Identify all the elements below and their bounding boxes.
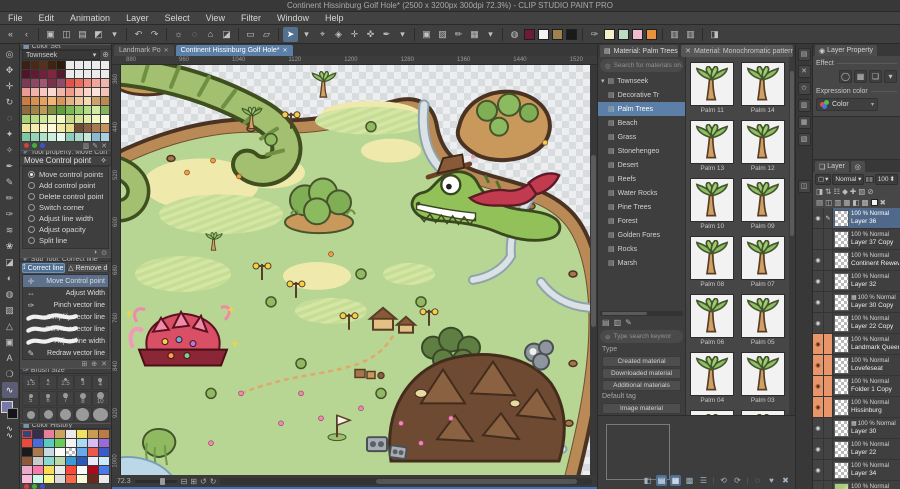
menu-animation[interactable]: Animation — [62, 12, 118, 25]
assets-search-box[interactable]: ◎Search for materials on AS — [600, 59, 683, 72]
history-swatch[interactable] — [44, 448, 54, 456]
grid-chevron[interactable]: ▾ — [483, 27, 498, 42]
layer-tool-icon[interactable]: ▤ — [816, 198, 823, 207]
transform-tool[interactable]: ✛ — [347, 27, 362, 42]
pen-tool[interactable]: ✎ — [2, 174, 18, 190]
search-layer-tab[interactable]: ◎ — [851, 161, 865, 172]
line-correct-tool[interactable]: ∿ — [2, 382, 18, 398]
layer-edit-icon[interactable] — [824, 271, 833, 291]
history-swatch[interactable] — [88, 439, 98, 447]
material-thumbnail[interactable]: Palm 08 — [690, 236, 735, 289]
color-swatch[interactable] — [101, 115, 109, 123]
material-thumbnail[interactable]: Palm 07 — [741, 236, 786, 289]
deselect[interactable]: ◌ — [187, 27, 202, 42]
layer-edit-icon[interactable] — [824, 334, 833, 354]
layer-row[interactable]: ◉100 % NormalLayer 22 — [813, 439, 900, 460]
history-swatch[interactable] — [66, 457, 76, 465]
color-swatch[interactable] — [66, 124, 74, 132]
anchor-tool[interactable]: ✜ — [363, 27, 378, 42]
radio-option[interactable]: Delete control point — [23, 191, 108, 202]
brush-size-preset[interactable] — [57, 407, 74, 422]
layer-row[interactable]: ◉▦100 % NormalLayer 30 — [813, 418, 900, 439]
color-swatch[interactable] — [40, 115, 48, 123]
color-swatch[interactable] — [31, 70, 39, 78]
color-swatch[interactable] — [66, 61, 74, 69]
color-swatch[interactable] — [92, 97, 100, 105]
eyedropper-tool[interactable]: ✒ — [2, 158, 18, 174]
image-panel[interactable]: ▨ — [435, 27, 450, 42]
history-swatch[interactable] — [22, 475, 32, 483]
color-swatch[interactable] — [22, 106, 30, 114]
dock-icon[interactable]: ◫ — [798, 180, 811, 193]
decoration-tool[interactable]: ❀ — [2, 238, 18, 254]
material-footer-icon[interactable]: ✖ — [780, 475, 791, 486]
brush-tool[interactable]: ✑ — [2, 206, 18, 222]
layer-tool-icon[interactable]: ◨ — [816, 187, 823, 196]
layer-property-tab[interactable]: ◉Layer Property — [815, 45, 877, 56]
swatch-mint[interactable] — [618, 29, 629, 40]
text-tool[interactable]: A — [2, 350, 18, 366]
layer-row[interactable]: ◉▦100 % NormalLayer 30 Copy — [813, 292, 900, 313]
layer-edit-icon[interactable] — [824, 439, 833, 459]
subtool-group-button[interactable]: △Remove d — [67, 263, 110, 273]
layer-tool-icon[interactable]: ▨ — [858, 187, 865, 196]
eye-icon[interactable]: ◉ — [813, 397, 824, 417]
menu-view[interactable]: View — [198, 12, 233, 25]
color-swatch[interactable] — [31, 115, 39, 123]
color-set-preset-select[interactable]: Townseek▾ — [22, 50, 100, 60]
red-dot-icon[interactable] — [24, 143, 29, 148]
color-swatch[interactable] — [84, 124, 92, 132]
green-dot-icon[interactable] — [32, 143, 37, 148]
color-swatch[interactable] — [57, 106, 65, 114]
layer-filter-select[interactable]: ▢▾ — [815, 174, 831, 185]
color-swatch[interactable] — [40, 88, 48, 96]
canvas-nav-icon[interactable]: ↻ — [210, 477, 217, 486]
special-ruler[interactable]: ◍ — [507, 27, 522, 42]
subtool-item[interactable]: ⇔Adjust Width — [23, 287, 108, 299]
history-swatch[interactable] — [33, 448, 43, 456]
subtool-item[interactable]: ✑Pinch vector line — [23, 299, 108, 311]
rotate-tool[interactable]: ↻ — [2, 94, 18, 110]
undo[interactable]: ↶ — [131, 27, 146, 42]
color-swatch[interactable] — [57, 97, 65, 105]
color-swatch[interactable] — [66, 70, 74, 78]
history-swatch[interactable] — [88, 475, 98, 483]
color-swatch[interactable] — [48, 124, 56, 132]
color-swatch[interactable] — [75, 133, 83, 141]
layer-tool-icon[interactable]: ☷ — [833, 187, 840, 196]
blend-tool[interactable]: ◐ — [2, 270, 18, 286]
collapse-palette[interactable]: ‹ — [19, 27, 34, 42]
color-swatch[interactable] — [92, 88, 100, 96]
material-footer-icon[interactable]: ▦ — [670, 475, 681, 486]
brush-size-preset[interactable]: 2 — [39, 375, 56, 390]
fill-tool[interactable]: ◍ — [2, 286, 18, 302]
stroke-preview-icon[interactable]: ◑ — [93, 249, 97, 256]
color-swatch[interactable] — [40, 70, 48, 78]
color-swatch[interactable] — [101, 97, 109, 105]
color-swatch[interactable] — [101, 124, 109, 132]
history-swatch[interactable] — [55, 475, 65, 483]
canvas-nav-icon[interactable]: ⊟ — [181, 477, 188, 486]
tree-item-forest[interactable]: ▤Forest — [598, 214, 685, 228]
eye-icon[interactable]: ◉ — [813, 481, 824, 489]
tree-item-desert[interactable]: ▤Desert — [598, 158, 685, 172]
tree-item-palm-trees[interactable]: ▤Palm Trees — [598, 102, 685, 116]
color-swatch[interactable] — [57, 88, 65, 96]
color-swatch[interactable] — [92, 70, 100, 78]
color-swatch[interactable] — [75, 70, 83, 78]
dock-icon[interactable]: ▧ — [798, 133, 811, 146]
layer-row[interactable]: ◉100 % NormalLovefeseat — [813, 355, 900, 376]
blue-dot-icon[interactable] — [40, 143, 45, 148]
color-swatch[interactable] — [22, 70, 30, 78]
color-swatch[interactable] — [31, 88, 39, 96]
material-thumbnail[interactable]: Palm 13 — [690, 120, 735, 173]
wrench-icon[interactable]: ⊙ — [101, 249, 107, 257]
history-swatch[interactable] — [33, 466, 43, 474]
eye-icon[interactable]: ◉ — [813, 460, 824, 480]
history-swatch[interactable] — [44, 475, 54, 483]
brush-size-preset[interactable]: 2.5 — [57, 375, 74, 390]
wand-tool[interactable]: ◈ — [331, 27, 346, 42]
tree-horizontal-scrollbar[interactable] — [600, 311, 683, 316]
type-filter-button[interactable]: Additional materials — [602, 380, 681, 391]
red-dot-icon[interactable] — [24, 484, 29, 489]
color-swatch[interactable] — [48, 115, 56, 123]
tree-root-townseek[interactable]: ▾▤Townseek — [598, 74, 685, 88]
history-swatch[interactable] — [66, 466, 76, 474]
color-swatch[interactable] — [92, 106, 100, 114]
brush-size-preset[interactable] — [39, 407, 56, 422]
lasso-tool[interactable]: ✦ — [2, 126, 18, 142]
add-subtool-icon[interactable]: ⊞ — [81, 360, 87, 368]
color-swatch[interactable] — [101, 70, 109, 78]
layer-tool-icon[interactable]: ◫ — [825, 198, 832, 207]
brush-size-preset[interactable]: 8 — [74, 391, 91, 406]
history-swatch[interactable] — [99, 466, 109, 474]
color-swatch[interactable] — [84, 79, 92, 87]
color-swatch[interactable] — [22, 133, 30, 141]
eye-icon[interactable]: ◉ — [813, 334, 824, 354]
history-swatch[interactable] — [77, 430, 87, 438]
history-swatch[interactable] — [55, 430, 65, 438]
layer-edit-icon[interactable] — [824, 292, 833, 312]
color-swatch[interactable] — [48, 97, 56, 105]
snap-special[interactable]: ▱ — [259, 27, 274, 42]
save-chevron[interactable]: ▾ — [107, 27, 122, 42]
brush-size-preset[interactable] — [74, 407, 91, 422]
swatch-black[interactable] — [566, 29, 577, 40]
layer-tool-icon[interactable]: ▩ — [861, 198, 868, 207]
color-swatch[interactable] — [92, 124, 100, 132]
color-swatch[interactable] — [92, 79, 100, 87]
color-swatch[interactable] — [22, 88, 30, 96]
material-thumbnail[interactable]: Palm 12 — [741, 120, 786, 173]
menu-select[interactable]: Select — [157, 12, 198, 25]
swatch-cream[interactable] — [604, 29, 615, 40]
dock-icon[interactable]: ✩ — [798, 82, 811, 95]
history-swatch[interactable] — [99, 457, 109, 465]
material-thumbnail[interactable]: Palm 03 — [741, 352, 786, 405]
material-vertical-scrollbar[interactable] — [789, 57, 795, 415]
blend-mode-select[interactable]: Normal▾ — [832, 174, 864, 185]
subtool-item[interactable]: Connect vector line — [23, 323, 108, 335]
brush-size-preset[interactable]: 10 — [92, 391, 109, 406]
delete-swatch-icon[interactable]: ✕ — [101, 142, 107, 150]
swatch-maroon[interactable] — [524, 29, 535, 40]
eye-icon[interactable]: ◉ — [813, 313, 824, 333]
dock-icon[interactable]: ▤ — [798, 48, 811, 61]
workspace-toggle[interactable]: ◨ — [707, 27, 722, 42]
eyedropper[interactable]: ✑ — [587, 27, 602, 42]
layer-edit-icon[interactable] — [824, 460, 833, 480]
move-layer-tool[interactable]: ⌖ — [315, 27, 330, 42]
tree-item-beach[interactable]: ▤Beach — [598, 116, 685, 130]
color-swatch[interactable] — [40, 124, 48, 132]
history-swatch[interactable] — [33, 457, 43, 465]
canvas-nav-icon[interactable]: ↺ — [200, 477, 207, 486]
color-swatch[interactable] — [40, 61, 48, 69]
brush-size-preset[interactable]: 3 — [74, 375, 91, 390]
history-swatch[interactable] — [44, 430, 54, 438]
eye-icon[interactable]: ◉ — [813, 271, 824, 291]
history-swatch[interactable] — [22, 466, 32, 474]
menu-file[interactable]: File — [0, 12, 31, 25]
color-swatch[interactable] — [92, 115, 100, 123]
material-footer-icon[interactable]: ⟳ — [732, 475, 743, 486]
color-swatch[interactable] — [75, 88, 83, 96]
history-swatch[interactable] — [99, 475, 109, 483]
layer-row[interactable]: ◉100 % NormalContinent Base Co — [813, 481, 900, 489]
document-tab[interactable]: Continent Hissinburg Golf Hole*✕ — [176, 45, 293, 56]
menu-filter[interactable]: Filter — [233, 12, 269, 25]
history-swatch[interactable] — [88, 457, 98, 465]
color-swatch[interactable] — [84, 70, 92, 78]
color-swatch[interactable] — [92, 61, 100, 69]
brush-size-preset[interactable]: 5 — [22, 391, 39, 406]
history-swatch[interactable] — [22, 439, 32, 447]
brush-size-preset[interactable] — [92, 407, 109, 422]
layer-row[interactable]: ◉✎100 % NormalLayer 36 — [813, 208, 900, 229]
fill[interactable]: ◪ — [219, 27, 234, 42]
color-swatch[interactable] — [75, 61, 83, 69]
material-shortcut-1[interactable]: ▥ — [667, 27, 682, 42]
color-swatch[interactable] — [22, 97, 30, 105]
eye-icon[interactable]: ◉ — [813, 376, 824, 396]
clear[interactable]: ☼ — [171, 27, 186, 42]
material-thumbnail[interactable]: Palm 06 — [690, 294, 735, 347]
color-swatch[interactable] — [48, 61, 56, 69]
radio-option[interactable]: Move control points — [23, 169, 108, 180]
color-swatch[interactable] — [22, 61, 30, 69]
swatch-orange[interactable] — [646, 29, 657, 40]
material-thumbnail[interactable]: Palm 09 — [741, 178, 786, 231]
brush-size-preset[interactable]: 1.5 — [22, 375, 39, 390]
swatch-pink[interactable] — [632, 29, 643, 40]
object-tool-chevron[interactable]: ▾ — [299, 27, 314, 42]
layer-tool-icon[interactable]: ◧ — [852, 198, 859, 207]
color-swatch[interactable] — [31, 97, 39, 105]
copy-subtool-icon[interactable]: ⊕ — [91, 360, 97, 368]
material-footer-icon[interactable]: ♥ — [766, 475, 777, 486]
color-swatch[interactable] — [92, 133, 100, 141]
delete-subtool-icon[interactable]: ✕ — [101, 360, 107, 368]
layer-edit-icon[interactable]: ✎ — [824, 208, 833, 228]
material-shortcut-2[interactable]: ▥ — [683, 27, 698, 42]
material-thumbnail[interactable]: Palm 05 — [741, 294, 786, 347]
layer-edit-icon[interactable] — [824, 376, 833, 396]
history-swatch[interactable] — [99, 448, 109, 456]
color-swatch[interactable] — [57, 124, 65, 132]
color-swatch[interactable] — [84, 88, 92, 96]
expression-color-select[interactable]: Color ▾ — [816, 98, 878, 111]
history-swatch[interactable] — [77, 457, 87, 465]
radio-option[interactable]: Adjust opacity — [23, 224, 108, 235]
material-thumbnail[interactable]: Palm 11 — [690, 62, 735, 115]
eraser-tool[interactable]: ◪ — [2, 254, 18, 270]
type-filter-button[interactable]: Created material — [602, 356, 681, 367]
history-swatch[interactable] — [77, 439, 87, 447]
material-footer-icon[interactable]: ▩ — [684, 475, 695, 486]
brush-settings[interactable]: ✏ — [451, 27, 466, 42]
history-swatch[interactable] — [55, 466, 65, 474]
tree-item-stonehengeo[interactable]: ▤Stonehengeo — [598, 144, 685, 158]
effect-icon[interactable]: ❏ — [869, 70, 882, 83]
history-swatch[interactable] — [66, 439, 76, 447]
eye-icon[interactable]: ◉ — [813, 418, 824, 438]
opacity-slider[interactable] — [865, 176, 873, 183]
color-swatch[interactable] — [22, 115, 30, 123]
zoom-tool[interactable]: ◎ — [2, 46, 18, 62]
layer-row[interactable]: 100 % NormalLayer 37 Copy — [813, 229, 900, 250]
grid-toggle[interactable]: ▦ — [467, 27, 482, 42]
canvas-vertical-scrollbar[interactable] — [590, 65, 597, 475]
brush-size-preset[interactable]: 4 — [92, 375, 109, 390]
color-swatch[interactable] — [101, 61, 109, 69]
eye-icon[interactable] — [813, 229, 824, 249]
color-swatch[interactable] — [75, 106, 83, 114]
layer-tab[interactable]: ❏Layer — [815, 161, 849, 172]
effect-icon[interactable]: ▾ — [884, 70, 897, 83]
history-swatch[interactable] — [66, 475, 76, 483]
close-icon[interactable]: ✕ — [283, 47, 288, 54]
color-swatch[interactable] — [22, 79, 30, 87]
material-footer-icon[interactable]: ◌ — [752, 475, 763, 486]
history-swatch[interactable] — [99, 439, 109, 447]
pencil-tool[interactable]: ✏ — [2, 190, 18, 206]
color-swatch[interactable] — [84, 61, 92, 69]
history-swatch[interactable] — [44, 439, 54, 447]
color-swatch[interactable] — [66, 115, 74, 123]
color-swatch[interactable] — [31, 124, 39, 132]
redo[interactable]: ↷ — [147, 27, 162, 42]
layer-tool-icon[interactable]: ▥ — [834, 198, 841, 207]
canvas-viewport[interactable] — [121, 65, 590, 475]
color-swatch[interactable] — [75, 79, 83, 87]
color-swatch[interactable] — [57, 115, 65, 123]
tree-item-grass[interactable]: ▤Grass — [598, 130, 685, 144]
color-swatch[interactable] — [40, 79, 48, 87]
color-swatch[interactable] — [48, 88, 56, 96]
material-tab-monochromatic[interactable]: ✕Material: Monochromatic pattern — [681, 45, 793, 57]
edit-folder-icon[interactable]: ✎ — [625, 318, 632, 327]
add-swatch-icon[interactable]: ▥ — [83, 142, 90, 150]
color-swatch[interactable] — [101, 79, 109, 87]
radio-option[interactable]: Switch corner — [23, 202, 108, 213]
history-swatch[interactable] — [55, 448, 65, 456]
history-swatch[interactable] — [88, 466, 98, 474]
layer-tool-icon[interactable]: ▦ — [843, 198, 850, 207]
type-filter-button[interactable]: Downloaded material — [602, 368, 681, 379]
edit-colorset-icon[interactable]: ⊕ — [102, 50, 109, 59]
effect-icon[interactable]: ▦ — [854, 70, 867, 83]
color-swatch[interactable] — [66, 106, 74, 114]
document-tab[interactable]: Landmark Po✕ — [114, 45, 174, 56]
material-thumbnail[interactable]: Palm 10 — [690, 178, 735, 231]
snap-ruler[interactable]: ▭ — [243, 27, 258, 42]
layer-edit-icon[interactable] — [824, 481, 833, 489]
layer-tool-icon[interactable]: ⇅ — [825, 187, 831, 196]
history-swatch[interactable] — [33, 439, 43, 447]
auto-select-tool[interactable]: ✧ — [2, 142, 18, 158]
history-swatch[interactable] — [22, 457, 32, 465]
layer-row[interactable]: ◉100 % NormalContinent Rewewsilv — [813, 250, 900, 271]
layer-row[interactable]: ◉100 % NormalLayer 32 — [813, 271, 900, 292]
replace-swatch-icon[interactable]: ✎ — [92, 142, 98, 150]
tree-item-pine-trees[interactable]: ▤Pine Trees — [598, 200, 685, 214]
radio-option[interactable]: Split line — [23, 235, 108, 246]
panel-toggle[interactable]: ▣ — [419, 27, 434, 42]
color-swatch[interactable] — [31, 79, 39, 87]
collapse-palette-left[interactable]: « — [3, 27, 18, 42]
tag-filter-button[interactable]: Image material — [602, 403, 681, 414]
subtool-item[interactable]: Simplify vector line — [23, 311, 108, 323]
tree-item-reefs[interactable]: ▤Reefs — [598, 172, 685, 186]
material-tab-palm-trees[interactable]: ▤Material: Palm Trees — [600, 45, 678, 57]
eye-icon[interactable]: ◉ — [813, 439, 824, 459]
color-swatch[interactable] — [66, 97, 74, 105]
eye-icon[interactable]: ◉ — [813, 355, 824, 375]
layer-edit-icon[interactable] — [824, 250, 833, 270]
eye-icon[interactable]: ◉ — [813, 292, 824, 312]
subtool-item[interactable]: ✛Move Control point — [23, 275, 108, 287]
move-tool[interactable]: ✛ — [2, 78, 18, 94]
balloon-tool[interactable]: ❍ — [2, 366, 18, 382]
open-file[interactable]: ▤ — [75, 27, 90, 42]
layer-tool-icon[interactable]: ✖ — [880, 198, 886, 207]
layer-row[interactable]: ◉100 % NormalLayer 22 Copy — [813, 313, 900, 334]
swatch-tan[interactable] — [552, 29, 563, 40]
close-icon[interactable]: ✕ — [685, 47, 691, 55]
color-swatch[interactable] — [75, 97, 83, 105]
color-swatch[interactable] — [48, 70, 56, 78]
color-swatch[interactable] — [66, 133, 74, 141]
color-swatch[interactable] — [48, 106, 56, 114]
color-swatch[interactable] — [66, 88, 74, 96]
selection-tool[interactable]: ◌ — [2, 110, 18, 126]
dock-icon[interactable]: ▦ — [798, 116, 811, 129]
object-tool[interactable]: ➤ — [283, 27, 298, 42]
history-swatch[interactable] — [77, 466, 87, 474]
color-swatch[interactable] — [75, 115, 83, 123]
tree-item-water-rocks[interactable]: ▤Water Rocks — [598, 186, 685, 200]
color-swatch[interactable] — [57, 79, 65, 87]
history-swatch[interactable] — [33, 430, 43, 438]
zoom-slider[interactable] — [135, 480, 177, 483]
new-canvas[interactable]: ◫ — [59, 27, 74, 42]
